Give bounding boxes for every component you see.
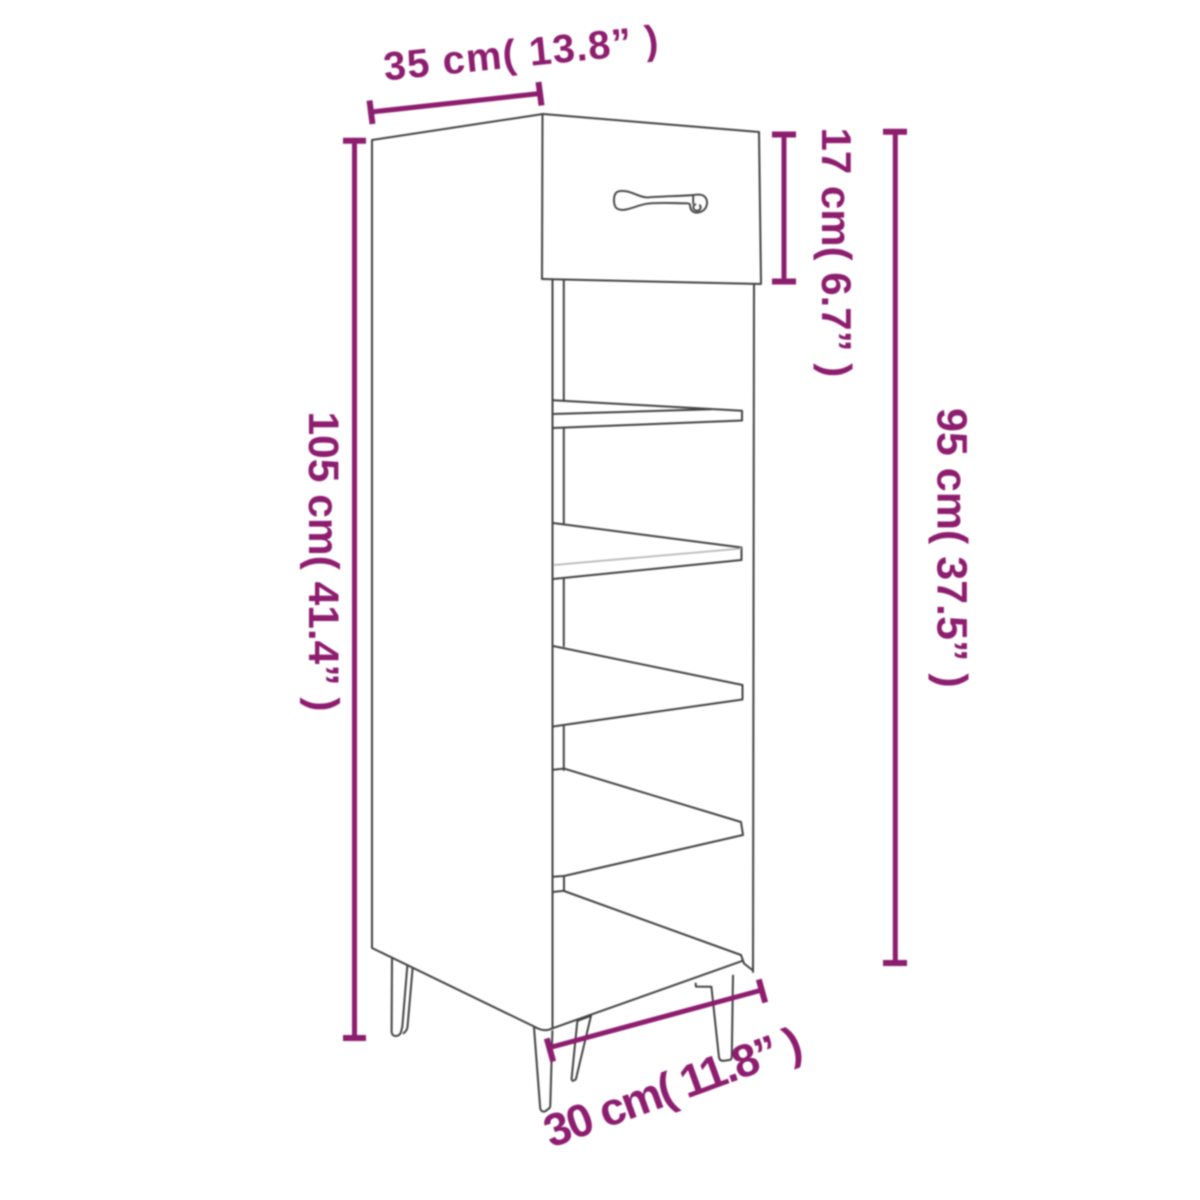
svg-text:105 cm( 41.4” ): 105 cm( 41.4” ) [299, 412, 346, 712]
svg-text:95 cm( 37.5” ): 95 cm( 37.5” ) [928, 408, 976, 688]
svg-text:17 cm( 6.7” ): 17 cm( 6.7” ) [813, 128, 860, 378]
